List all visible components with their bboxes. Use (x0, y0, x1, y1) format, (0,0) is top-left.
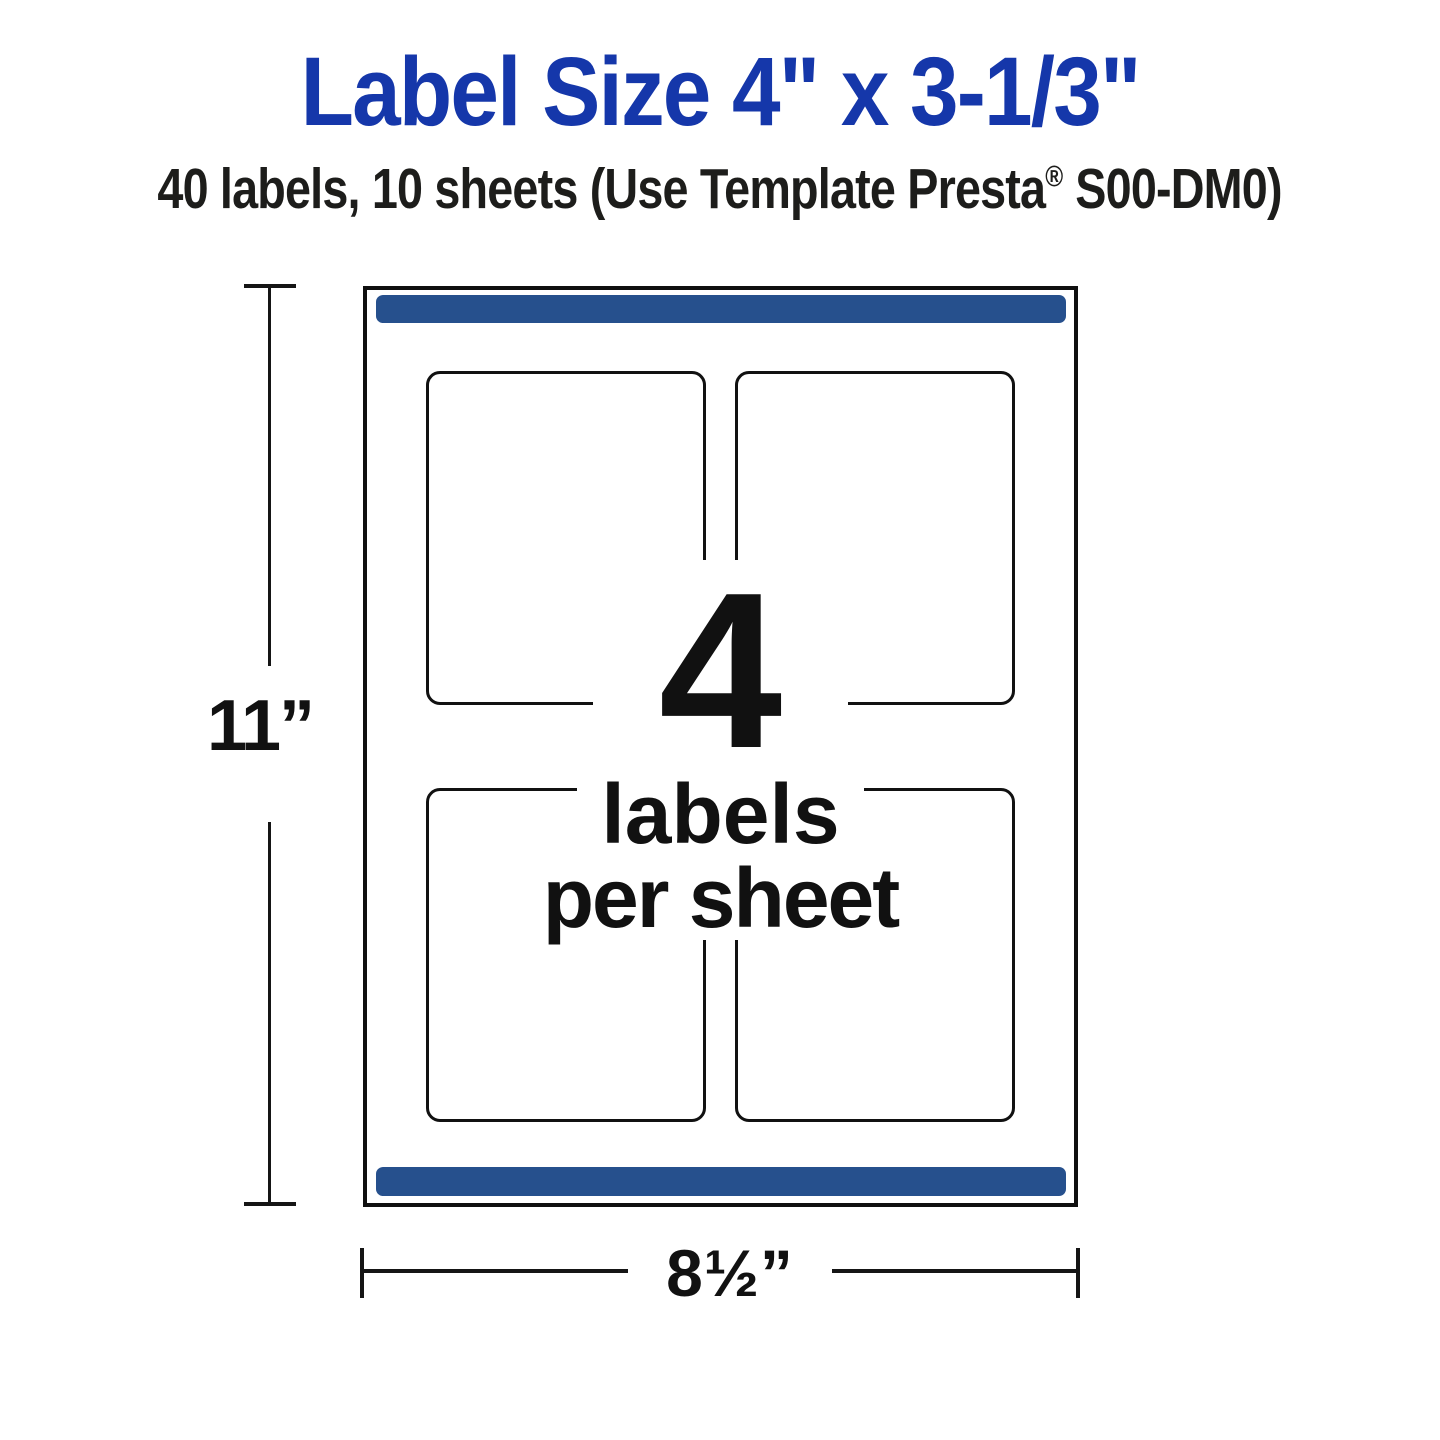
subtitle-pre: 40 labels, 10 sheets (Use Template Prest… (158, 157, 1046, 221)
subtitle-post: S00-DM0) (1064, 157, 1283, 221)
width-dimension-left-cap (360, 1248, 364, 1298)
page-title: Label Size 4" x 3-1/3" (0, 43, 1440, 140)
height-dimension-label: 11” (180, 690, 340, 762)
sheet-top-margin-bar (376, 295, 1066, 323)
labels-count: 4 (593, 560, 848, 782)
page-title-text: Label Size 4" x 3-1/3" (301, 43, 1140, 140)
width-dimension-label: 8½” (630, 1240, 830, 1306)
subtitle: 40 labels, 10 sheets (Use Template Prest… (0, 161, 1440, 218)
height-dimension-line-upper (268, 288, 271, 666)
width-dimension-line-right (832, 1269, 1078, 1273)
height-dimension-bottom-cap (244, 1202, 296, 1206)
callout-word-labels: labels (577, 772, 863, 856)
sheet-diagram: 4 labels per sheet (363, 286, 1078, 1207)
sheet-bottom-margin-bar (376, 1167, 1066, 1196)
subtitle-text: 40 labels, 10 sheets (Use Template Prest… (158, 161, 1282, 218)
height-dimension-line-lower (268, 822, 271, 1204)
registered-trademark-symbol: ® (1046, 161, 1064, 194)
width-dimension-line-left (362, 1269, 628, 1273)
width-dimension-right-cap (1076, 1248, 1080, 1298)
callout-words-per-sheet: per sheet (517, 856, 925, 940)
label-template-illustration: Label Size 4" x 3-1/3" 40 labels, 10 she… (0, 0, 1440, 1440)
labels-per-sheet-callout: 4 labels per sheet (367, 560, 1074, 940)
